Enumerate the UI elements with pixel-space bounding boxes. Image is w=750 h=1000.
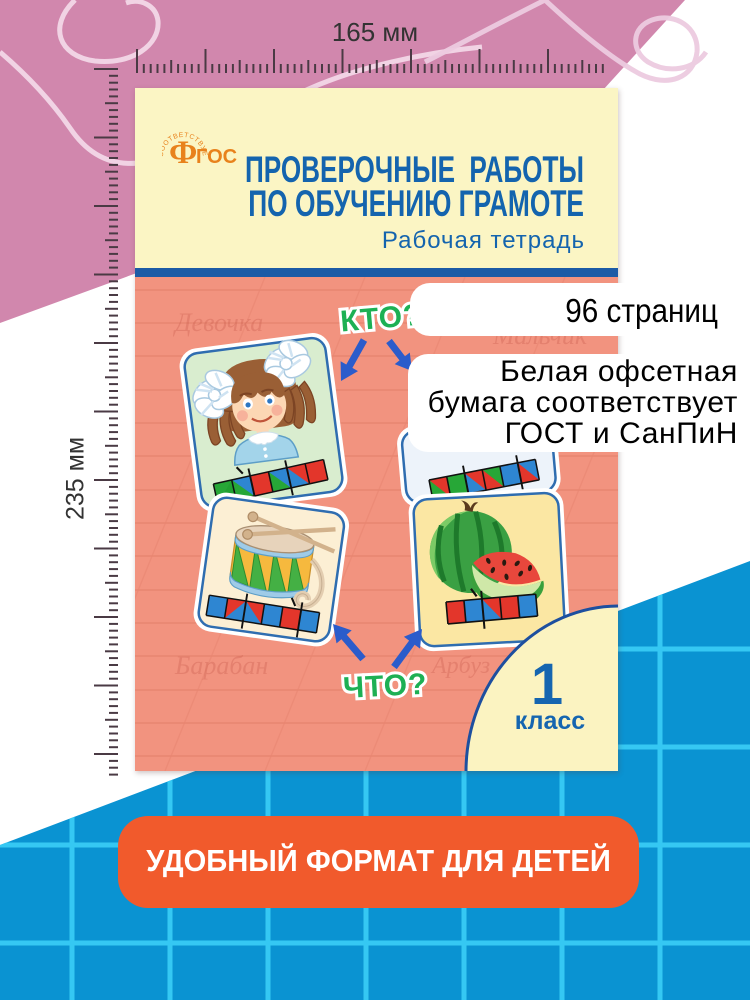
svg-text:Арбуз: Арбуз bbox=[430, 653, 490, 679]
svg-text:Девочка: Девочка bbox=[172, 308, 263, 337]
svg-text:класс: класс bbox=[515, 707, 586, 735]
svg-text:ЧТО?: ЧТО? bbox=[342, 668, 428, 705]
svg-text:Барабан: Барабан bbox=[174, 651, 268, 680]
